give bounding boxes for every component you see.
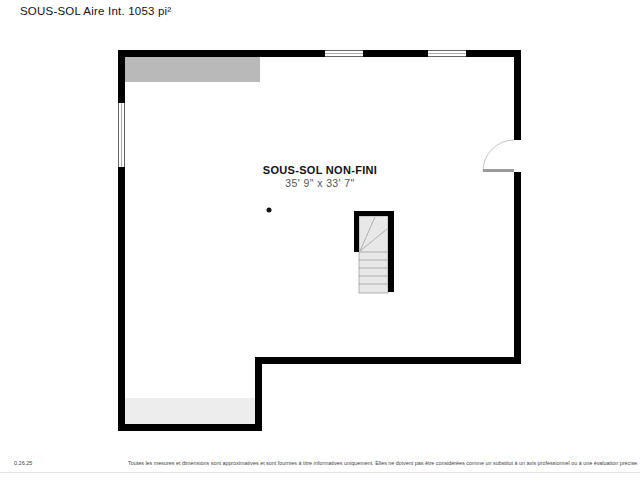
room-dimensions: 35' 9" x 33' 7" <box>210 177 430 189</box>
wall-step <box>255 357 262 431</box>
door-swing-arc <box>483 140 514 171</box>
footer-version: 0.26.25 <box>14 460 32 466</box>
door-opening <box>514 140 521 172</box>
stair-wall-left <box>354 211 359 252</box>
position-dot <box>267 208 272 213</box>
stair-wall-right <box>388 211 394 292</box>
exterior-walls <box>118 50 521 431</box>
wall-right <box>514 50 521 364</box>
room-label: SOUS-SOL NON-FINI <box>210 164 430 176</box>
window-top-right <box>428 50 466 57</box>
floor-plan-page: SOUS-SOL Aire Int. 1053 pi² SOUS-SOL NON… <box>0 0 640 480</box>
wall-bottom-right <box>255 357 521 364</box>
window-top-left <box>325 50 363 57</box>
door-leaf <box>483 169 514 172</box>
floor-plan-drawing <box>0 0 640 480</box>
wall-bottom-left <box>118 424 262 431</box>
top-left-gray-area <box>125 57 260 82</box>
page-title: SOUS-SOL Aire Int. 1053 pi² <box>20 5 171 17</box>
bottom-left-light-gray-area <box>125 398 255 424</box>
window-left-wall <box>118 103 125 167</box>
footer-disclaimer: Toutes les mesures et dimensions sont ap… <box>128 460 624 466</box>
door-right-wall <box>483 140 521 172</box>
stair-well <box>359 216 388 293</box>
staircase <box>354 211 394 293</box>
bottom-divider <box>0 472 640 473</box>
